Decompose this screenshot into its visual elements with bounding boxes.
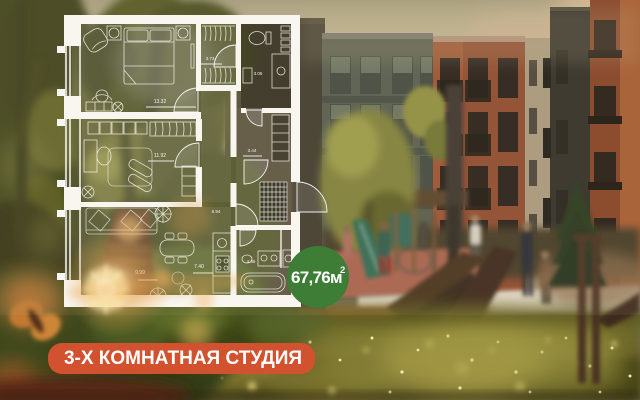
svg-text:3-Х КОМНАТНАЯ СТУДИЯ: 3-Х КОМНАТНАЯ СТУДИЯ [64, 348, 302, 369]
svg-text:3.44: 3.44 [248, 148, 257, 153]
svg-text:11.92: 11.92 [154, 153, 166, 159]
svg-text:4.36: 4.36 [247, 259, 256, 264]
svg-text:7.40: 7.40 [194, 264, 204, 270]
svg-text:3.73: 3.73 [206, 56, 215, 61]
svg-text:67,76м: 67,76м [291, 268, 342, 287]
svg-text:3.06: 3.06 [254, 71, 263, 76]
svg-text:2: 2 [340, 265, 345, 276]
svg-text:8.94: 8.94 [212, 209, 221, 214]
svg-text:13.32: 13.32 [154, 99, 167, 105]
